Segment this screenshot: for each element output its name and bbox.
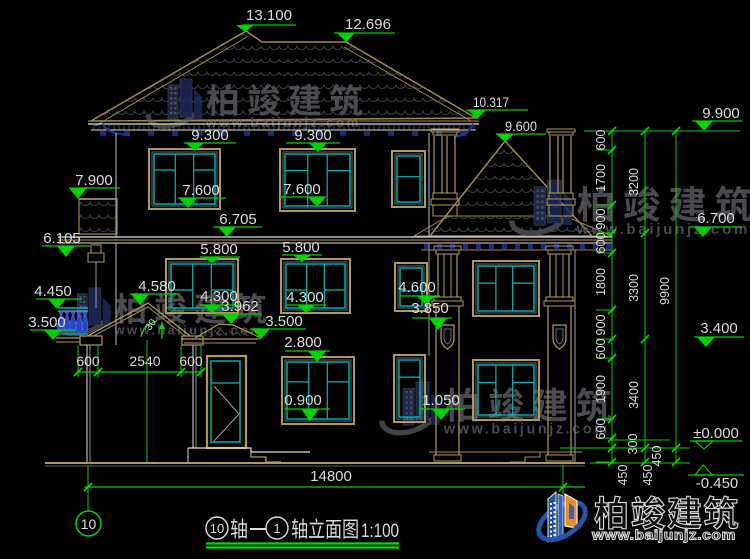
svg-text:7.600: 7.600 [283,181,321,198]
svg-text:7.600: 7.600 [182,182,220,199]
svg-text:6.705: 6.705 [219,211,257,228]
svg-text:600: 600 [594,419,608,440]
svg-text:3.500: 3.500 [265,313,303,330]
svg-text:600: 600 [594,339,608,360]
svg-text:6.105: 6.105 [43,230,81,247]
svg-text:7.900: 7.900 [75,172,113,189]
svg-text:1800: 1800 [594,268,608,296]
svg-text:13.100: 13.100 [246,7,292,24]
svg-text:±0.000: ±0.000 [693,425,739,442]
svg-text:2.800: 2.800 [284,334,322,351]
svg-text:3400: 3400 [627,381,641,409]
svg-text:10: 10 [81,516,97,532]
svg-text:12.696: 12.696 [345,16,391,33]
svg-text:900: 900 [594,315,608,336]
svg-text:6.700: 6.700 [697,210,735,227]
svg-text:3300: 3300 [627,274,641,302]
svg-text:0.900: 0.900 [284,392,322,409]
svg-text:www.baijunjz.com: www.baijunjz.com [443,422,610,438]
svg-text:9.300: 9.300 [191,127,229,144]
svg-text:9900: 9900 [658,277,672,305]
svg-text:1:100: 1:100 [361,521,399,542]
svg-text:3.962: 3.962 [221,298,259,315]
svg-text:www.baijunjz.com: www.baijunjz.com [591,528,736,543]
svg-text:900: 900 [594,209,608,230]
svg-text:9.600: 9.600 [505,119,537,134]
svg-text:600: 600 [179,353,203,369]
svg-text:450: 450 [641,465,655,486]
svg-text:9.900: 9.900 [702,105,740,122]
svg-text:4.600: 4.600 [398,279,436,296]
svg-text:300: 300 [626,434,640,455]
svg-text:9.300: 9.300 [294,127,332,144]
svg-text:600: 600 [76,353,100,369]
svg-text:5.800: 5.800 [200,241,238,258]
svg-text:2540: 2540 [129,353,160,369]
svg-text:3.500: 3.500 [28,314,66,331]
svg-text:1900: 1900 [594,375,608,403]
svg-text:3.850: 3.850 [411,300,449,317]
svg-text:450: 450 [616,465,630,486]
svg-text:3200: 3200 [627,168,641,196]
svg-text:3.400: 3.400 [700,320,738,337]
svg-text:4.580: 4.580 [138,278,176,295]
svg-text:600: 600 [594,130,608,151]
svg-text:10: 10 [210,521,224,536]
svg-text:600: 600 [594,233,608,254]
svg-text:5.800: 5.800 [282,239,320,256]
svg-text:-0.450: -0.450 [696,475,739,492]
svg-text:10.317: 10.317 [473,95,509,110]
svg-text:1700: 1700 [594,164,608,192]
svg-text:4.300: 4.300 [286,289,324,306]
svg-text:450: 450 [650,446,664,467]
svg-text:1: 1 [273,521,280,536]
svg-text:14800: 14800 [310,468,352,485]
svg-text:4.450: 4.450 [34,283,72,300]
svg-text:1.050: 1.050 [422,392,460,409]
